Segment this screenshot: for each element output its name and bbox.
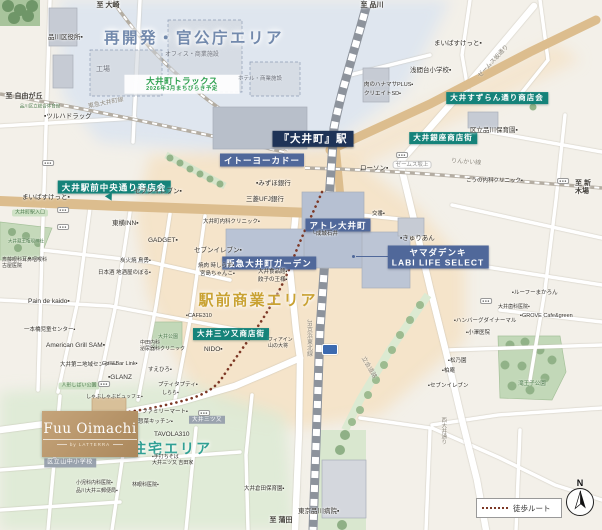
poi-label: 日本酒 地酒屋のぼる▪	[98, 270, 151, 276]
direction-label-kamata: 至 蒲田	[270, 517, 293, 525]
development-note-tracks: 大井町トラックス 2026年3月まちびらき予定	[124, 75, 239, 94]
poi-label: GADGET▪	[148, 237, 178, 245]
poi-label: 品川大井三郵便局▪	[76, 489, 118, 495]
poi-label: ローソン▪	[360, 165, 388, 173]
entrance-badge: 大井町駅入口	[12, 210, 48, 217]
walk-route-dots-icon	[482, 507, 508, 509]
building-label-hotel: ホテル・商業施設	[238, 76, 282, 82]
poi-label: クリエイトSD▪	[364, 91, 401, 97]
compass-needle-icon	[566, 488, 594, 516]
poi-label: NIDO▪	[204, 346, 223, 354]
poi-label: 餃子の王様▪	[258, 277, 287, 283]
facility-badge-atre: アトレ大井町	[305, 218, 370, 231]
direction-label-osaki: 至 大崎	[97, 2, 120, 10]
poi-label: ▪柏庵	[442, 368, 455, 374]
fuu-oimachi-site-box: Fuu Oimachi by LATTERRA	[42, 411, 138, 457]
poi-label: └成城石井	[312, 231, 338, 237]
poi-label: 交番▪	[372, 211, 385, 217]
road-sign-icon	[322, 344, 338, 355]
poi-label: 一本橋児童センター▪	[24, 327, 75, 333]
poi-label: ▪小澤医院	[466, 330, 490, 336]
poi-label: ▪松乃園	[448, 358, 466, 364]
intersection-label: ゼームス坂上	[393, 161, 432, 169]
poi-label: セブンイレブン▪	[194, 247, 242, 255]
park-label-takioji: 滝王子公園	[518, 381, 546, 387]
poi-label: 品川区役所▪	[48, 34, 83, 42]
facility-badge-hankyu: 阪急大井町ガーデン	[222, 256, 316, 269]
poi-label: 惣菜キッチン▪	[138, 419, 173, 425]
poi-label: TAVOLA310	[154, 431, 190, 439]
poi-label: American Grill SAM▪	[46, 342, 105, 350]
oimachi-area-map: 再開発・官公庁エリア駅前商業エリア住宅エリア『大井町』駅イトーヨーカドーアトレ大…	[0, 0, 602, 530]
poi-label: 大井食品館▪	[258, 269, 287, 275]
school-badge-yamanaka: 区立山中小学校	[44, 458, 96, 467]
brand-name: Fuu Oimachi	[43, 421, 136, 440]
poi-label: 林眼科医院▪	[132, 483, 159, 489]
traffic-signal-icon: ●●●	[98, 381, 110, 387]
poi-label: こうの内科クリニック▪	[466, 178, 523, 184]
poi-label: 肉のハナマサPLUS▪	[364, 82, 413, 88]
poi-label: すえひろ▪	[148, 367, 172, 373]
traffic-signal-icon: ●●●	[198, 410, 210, 416]
poi-label: ▪みずほ銀行	[256, 180, 291, 188]
poi-label: ▪ツルハドラッグ	[44, 113, 92, 121]
poi-label: 三菱UFJ銀行	[246, 196, 284, 204]
poi-label: まいばすけっと▪	[22, 194, 70, 202]
poi-label: ファミリーマート▪	[142, 409, 188, 415]
poi-label: 炭火焼 鳥勇▪	[120, 258, 151, 264]
poi-label: プティタプティ▪	[158, 382, 198, 388]
gym-label: 品川区立総合体育館	[20, 103, 61, 108]
crossing-badge-mitsumata: 大井三ツ又	[189, 416, 225, 424]
poi-label: ▪GROVE Cafe&green	[520, 313, 573, 319]
poi-label: 斎藤眼科耳鼻咽喉科 古屋医院	[2, 258, 47, 270]
road-label-nishioi: 西大井通り	[440, 417, 446, 445]
direction-label-jiyugaoka: 至 自由が丘	[6, 93, 43, 101]
poi-label: セブンイレブン▪	[134, 188, 182, 196]
poi-label: ▪手打ちそば 大井三ツ又 吉田家	[152, 455, 193, 467]
direction-label-shinagawa: 至 品川	[361, 2, 384, 10]
poi-label: 大井歯科医院▪	[498, 305, 530, 311]
poi-label: ▪CAFE310	[186, 313, 212, 319]
poi-label: しらら▪	[162, 391, 179, 397]
legend-box: 徒歩ルート	[476, 498, 562, 518]
traffic-signal-icon: ●●●	[42, 160, 54, 166]
facility-badge-yamada: ヤマダデンキ LABI LIFE SELECT	[388, 245, 489, 268]
compass-north-label: N	[563, 478, 597, 488]
area-title-commercial: 駅前商業エリア	[198, 292, 317, 310]
poi-label: ▪GLANZ	[108, 374, 132, 382]
poi-label: ▪ルーフーまかろん	[512, 290, 558, 296]
poi-label: ▪きゅりあん	[400, 235, 435, 243]
poi-label: 区立品川保育園▪	[470, 127, 518, 135]
poi-label: 中田内科 泌尿器科クリニック	[140, 341, 185, 353]
brand-subtitle: by LATTERRA	[57, 442, 123, 447]
legend-walk-route-label: 徒歩ルート	[513, 503, 551, 514]
traffic-signal-icon: ●●●	[396, 152, 408, 158]
poi-label: Pain de kaido▪	[28, 298, 70, 306]
shopping-street-badge-mitsumata: 大井三ツ又商店街	[193, 328, 269, 340]
compass: N	[563, 478, 597, 526]
traffic-signal-icon: ●●●	[57, 224, 69, 230]
poi-label: 東京品川病院▪	[298, 508, 339, 516]
poi-label: Grill&Bar Link▪	[102, 361, 138, 367]
shrine-label: 大井蔵王権現神社	[8, 238, 44, 243]
poi-label: 東横INN▪	[112, 220, 139, 228]
poi-label: ▪ハンバーグダイナーマル	[454, 318, 516, 324]
poi-label: 小児科内科医院▪	[76, 481, 113, 487]
poi-label: フィアイン 山の大将	[268, 338, 293, 350]
poi-label: まいばすけっと▪	[434, 40, 482, 48]
area-title-redevelopment: 再開発・官公庁エリア	[104, 30, 284, 48]
poi-label: 浅間台小学校▪	[410, 67, 451, 75]
shopping-street-badge-suzuran: 大井すずらん通り商店会	[446, 92, 548, 104]
facility-badge-itoyokado: イトーヨーカドー	[220, 153, 304, 166]
railway-label-keihin-tohoku: JR京浜東北線	[304, 319, 311, 356]
poi-label: 大井倉田保育園▪	[244, 486, 284, 492]
traffic-signal-icon: ●●●	[57, 207, 69, 213]
shopping-street-badge-ginza: 大井銀座商店街	[409, 132, 477, 144]
poi-label: 焼肉 時しらず▪	[198, 263, 234, 269]
traffic-signal-icon: ●●●	[557, 178, 569, 184]
poi-label: 大井町内科クリニック▪	[203, 219, 260, 225]
traffic-signal-icon: ●●●	[480, 298, 492, 304]
poi-label: 宮島ちゃんこ▪	[200, 271, 235, 277]
direction-label-shinkiba: 至 新木場	[575, 180, 593, 197]
park-badge: 人形しばい公園	[58, 383, 99, 390]
building-label-factory: 工場	[96, 66, 110, 74]
poi-label: ▪セブンイレブン	[428, 383, 468, 389]
badge-connector-dot	[352, 255, 355, 258]
station-badge-oimachi: 『大井町』駅	[273, 131, 354, 147]
poi-label: しゃぶしゃぶビュッフェ▪	[86, 395, 143, 401]
building-label-office: オフィス・商業施設	[165, 52, 219, 59]
